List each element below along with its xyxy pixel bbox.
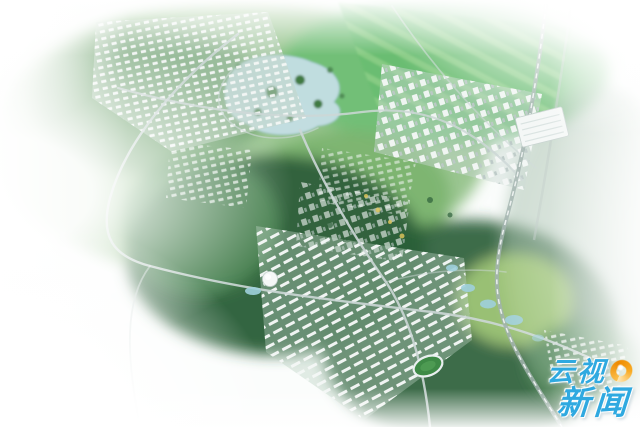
shore-trees [340, 94, 345, 99]
tree-cluster [343, 238, 348, 243]
lake-island [314, 100, 323, 109]
pond [532, 335, 544, 342]
pond [461, 284, 475, 292]
tree-cluster [327, 222, 333, 228]
dome-hall [263, 272, 278, 287]
cityscape-illustration [0, 0, 640, 427]
tree-cluster [427, 197, 433, 203]
autumn-tree [364, 194, 368, 198]
shore-trees [327, 67, 333, 73]
district-west-of-lake [166, 142, 252, 208]
tree-cluster [448, 213, 453, 218]
autumn-tree [388, 220, 392, 224]
pond [245, 287, 261, 295]
news-photo-aerial-masterplan: 云视 新闻 [0, 0, 640, 427]
pond [505, 315, 523, 325]
dome-highlight [265, 274, 271, 280]
pond [480, 300, 496, 309]
autumn-tree [376, 208, 381, 213]
pond [446, 265, 458, 272]
lake-island [295, 75, 305, 85]
autumn-tree [400, 234, 405, 239]
orange-ring-icon [608, 359, 634, 383]
sparkle-icon [617, 364, 624, 371]
watermark-text-line2: 新闻 [544, 386, 632, 421]
